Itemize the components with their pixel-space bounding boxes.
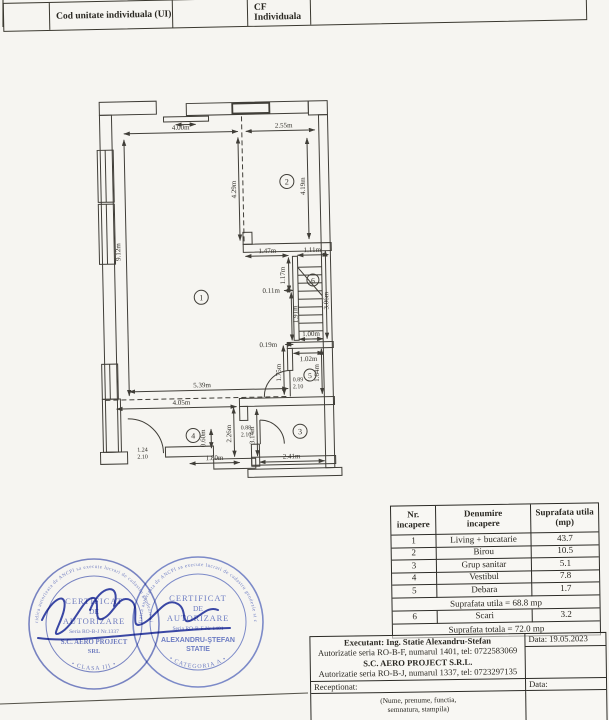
room-number: 3: [298, 427, 302, 436]
stair-wall: [292, 256, 299, 340]
door-label: 2.10: [241, 432, 252, 438]
door-label: 0.89: [293, 377, 304, 383]
room-number: 6: [311, 276, 315, 285]
dim-label: 1.91m: [291, 305, 299, 323]
area-cell: 6: [393, 611, 438, 624]
dashed-partition: [241, 116, 244, 243]
note-line: semnatura, stampila): [314, 703, 522, 715]
dim-label: 1.17m: [279, 266, 287, 284]
area-cell: 43.7: [531, 532, 598, 546]
door-label: 0.88: [241, 425, 252, 431]
empty-cell: [526, 690, 606, 720]
door-arc: [260, 420, 284, 444]
dim-label: 0.60m: [199, 429, 207, 447]
lintel: [163, 116, 208, 122]
executant-block: Executant: Ing. Statie Alexandru-Stefan …: [309, 632, 607, 720]
scanned-cadastral-document: 4.00m 2.55m 4.29m 4.19m 9.12m 1.47m 1.11…: [0, 0, 609, 720]
dim-label: 1.11m: [303, 246, 321, 254]
header-cell-cod-ui: Cod unitate individuala (UI): [50, 0, 174, 29]
dim-label: 1.00m: [302, 330, 320, 338]
handwritten-signature: [30, 580, 240, 655]
room-numbers: 1 2 3 4 5 6: [181, 174, 323, 443]
header-line: incapere: [397, 520, 430, 530]
dim-label: 4.19m: [299, 177, 307, 195]
stamp-class: • CATEGORIA A •: [168, 656, 228, 670]
header-cell-empty: [4, 3, 51, 31]
wall-pier: [232, 103, 269, 114]
door-leaf: [290, 370, 291, 396]
dim-label: 2.26m: [225, 424, 233, 442]
authorization-line: Autorizatie seria RO-B-J, numarul 1337, …: [314, 667, 522, 680]
window-line: [105, 150, 106, 202]
wall: [239, 397, 334, 407]
area-cell: 7.8: [532, 570, 599, 584]
area-cell: 2: [392, 547, 437, 560]
executant-info: Executant: Ing. Statie Alexandru-Stefan …: [310, 634, 526, 682]
room-number: 2: [285, 177, 289, 186]
dim-label: 1.47m: [258, 247, 276, 255]
wall: [248, 467, 342, 477]
area-cell: 1.7: [532, 582, 599, 596]
header-line: (mp): [555, 518, 574, 528]
area-cell: 5: [392, 585, 437, 598]
room-number: 5: [308, 371, 312, 380]
stamp-class: • CLASA III •: [70, 661, 117, 672]
area-header-cell: Nr. incapere: [391, 506, 436, 536]
dim-label: 1.80m: [206, 454, 224, 462]
area-cell: 3.2: [533, 608, 600, 622]
date-cell: Data: 19.05.2023: [525, 633, 605, 647]
empty-cell: [526, 646, 606, 679]
header-line: incapere: [467, 519, 500, 529]
area-table-header: Nr. incapere Denumire incapere Suprafata…: [391, 503, 598, 535]
wall: [287, 348, 292, 370]
header-cell-cf: CF Individuala: [248, 0, 312, 26]
dim-label: 4.05m: [173, 399, 191, 407]
header-cell-empty: [311, 0, 586, 25]
dim-label: 0.11m: [262, 287, 280, 295]
floor-plan-drawing: 4.00m 2.55m 4.29m 4.19m 9.12m 1.47m 1.11…: [93, 97, 342, 480]
area-cell: 5.1: [532, 557, 599, 571]
dim-label: 1.75m: [275, 363, 283, 381]
room-number: 4: [191, 431, 195, 440]
wall: [308, 101, 327, 115]
door-leaf: [260, 420, 261, 444]
area-cell: Debara: [437, 583, 532, 597]
dim-label: 5.39m: [193, 381, 211, 389]
date-cell: Data:: [526, 678, 606, 691]
area-cell: 10.5: [532, 545, 599, 559]
area-cell: Scari: [438, 609, 533, 623]
area-header-cell: Denumire incapere: [436, 504, 531, 534]
window-line: [110, 364, 111, 399]
header-cell-empty: [173, 0, 249, 27]
signature-note: (Nume, prenume, functia, semnatura, stam…: [311, 691, 526, 720]
area-cell: 3: [392, 560, 437, 573]
window-line: [106, 204, 107, 264]
door-label: 2.10: [293, 384, 304, 390]
area-table: Nr. incapere Denumire incapere Suprafata…: [390, 502, 601, 638]
dim-label: 2.55m: [275, 121, 293, 129]
dim-label: 9.12m: [114, 243, 122, 261]
dim-label: 3.06m: [322, 291, 330, 309]
wall: [100, 452, 127, 465]
wall: [287, 342, 333, 349]
dimension-labels: 4.00m 2.55m 4.29m 4.19m 9.12m 1.47m 1.11…: [112, 121, 334, 464]
room-number: 1: [199, 293, 203, 302]
area-header-cell: Suprafata utila (mp): [531, 503, 598, 533]
wall: [240, 406, 248, 420]
dim-label: 0.19m: [259, 341, 277, 349]
dim-label: 1.02m: [300, 355, 318, 363]
area-cell: 4: [392, 572, 437, 585]
wall: [99, 101, 156, 115]
door-label: 1.24: [137, 447, 148, 453]
door-label: 2.10: [137, 454, 148, 460]
dim-label: 4.29m: [230, 180, 238, 198]
area-cell: 1: [391, 535, 436, 548]
dim-label: 2.41m: [283, 452, 301, 460]
